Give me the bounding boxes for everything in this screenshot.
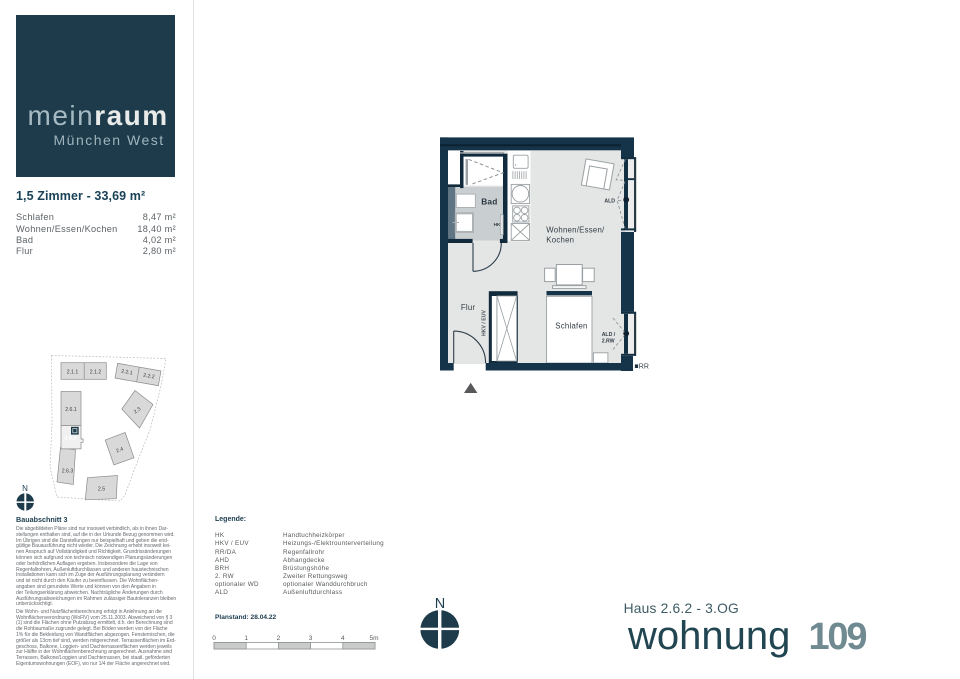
svg-text:Kochen: Kochen	[546, 235, 574, 244]
svg-text:RR: RR	[639, 364, 649, 371]
svg-text:ALD /: ALD /	[602, 332, 616, 338]
svg-text:1: 1	[244, 635, 248, 642]
svg-text:Flur: Flur	[461, 303, 476, 312]
svg-text:2: 2	[277, 635, 281, 642]
svg-text:Schlafen: Schlafen	[555, 321, 587, 330]
svg-text:2.RW: 2.RW	[602, 339, 615, 345]
svg-text:N: N	[22, 484, 28, 493]
svg-text:5m: 5m	[369, 635, 378, 642]
svg-text:2.6.1: 2.6.1	[65, 407, 77, 413]
svg-text:ALD: ALD	[604, 198, 615, 204]
svg-text:2.6.3: 2.6.3	[62, 469, 74, 475]
svg-text:HK: HK	[494, 222, 501, 228]
svg-text:0: 0	[212, 635, 216, 642]
svg-text:Bad: Bad	[481, 197, 497, 207]
svg-text:2.5: 2.5	[98, 487, 105, 493]
svg-text:4: 4	[341, 635, 345, 642]
svg-text:HKV / EUV: HKV / EUV	[482, 310, 488, 336]
svg-text:3: 3	[309, 635, 313, 642]
svg-text:2.6.2: 2.6.2	[65, 436, 77, 442]
svg-text:2.1.2: 2.1.2	[90, 370, 102, 376]
svg-text:2.1.1: 2.1.1	[67, 370, 79, 376]
svg-text:Wohnen/Essen/: Wohnen/Essen/	[546, 226, 605, 235]
